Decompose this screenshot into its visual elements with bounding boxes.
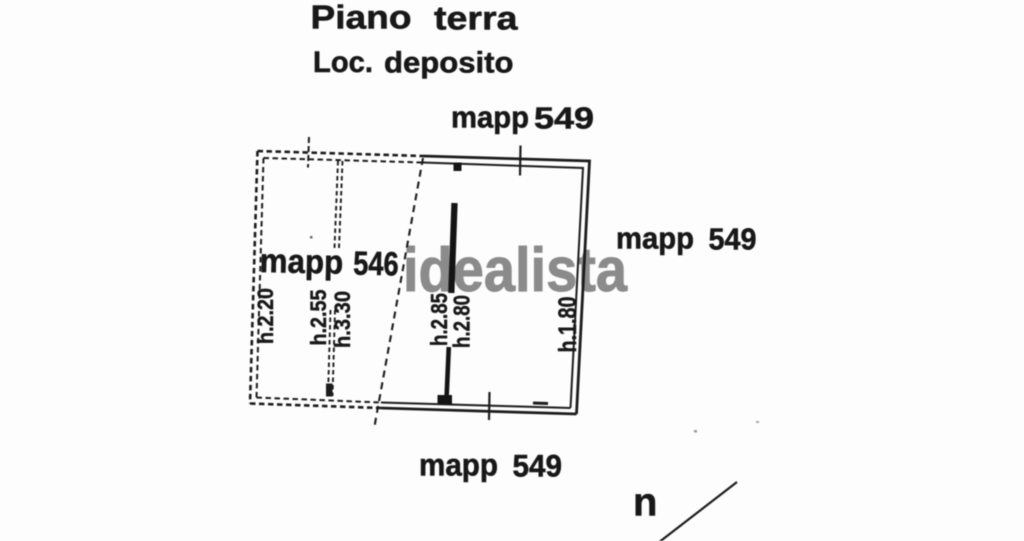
- svg-text:h.2.55: h.2.55: [306, 290, 331, 346]
- svg-text:mapp: mapp: [419, 447, 498, 483]
- svg-text:n: n: [633, 481, 657, 525]
- svg-text:546: 546: [353, 245, 399, 283]
- svg-text:Piano: Piano: [311, 0, 412, 36]
- svg-text:549: 549: [534, 102, 594, 136]
- svg-text:deposito: deposito: [384, 47, 514, 80]
- svg-text:549: 549: [709, 223, 757, 257]
- svg-text:h.2.20: h.2.20: [253, 288, 278, 344]
- svg-text:Loc.: Loc.: [313, 46, 373, 79]
- svg-text:mapp: mapp: [259, 243, 343, 282]
- svg-text:549: 549: [513, 448, 563, 484]
- svg-text:mapp: mapp: [616, 222, 694, 256]
- svg-text:h.2.80: h.2.80: [449, 295, 475, 348]
- svg-text:terra: terra: [434, 0, 518, 37]
- svg-text:mapp: mapp: [451, 101, 529, 135]
- svg-text:h.1.80: h.1.80: [554, 297, 582, 353]
- svg-text:h.3.30: h.3.30: [330, 291, 355, 348]
